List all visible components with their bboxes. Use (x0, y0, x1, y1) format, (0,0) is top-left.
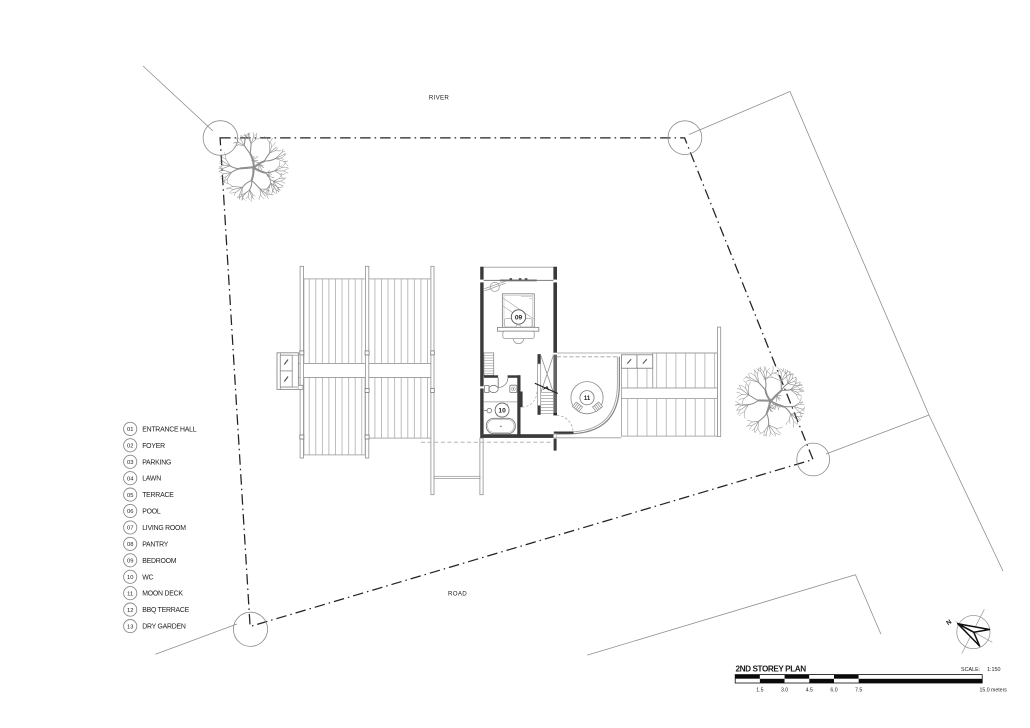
svg-text:1:150: 1:150 (987, 667, 1001, 673)
svg-text:05: 05 (127, 493, 133, 499)
svg-text:ENTRANCE HALL: ENTRANCE HALL (142, 426, 197, 433)
svg-text:01: 01 (127, 427, 133, 433)
svg-text:BBQ TERRACE: BBQ TERRACE (142, 607, 189, 614)
svg-text:1.5: 1.5 (756, 688, 763, 694)
svg-text:15.0 meters: 15.0 meters (980, 688, 1008, 694)
svg-text:12: 12 (127, 608, 133, 614)
svg-text:09: 09 (127, 559, 133, 565)
svg-text:PARKING: PARKING (142, 459, 171, 466)
svg-text:10: 10 (127, 575, 133, 581)
svg-text:04: 04 (127, 476, 134, 482)
svg-text:07: 07 (127, 526, 133, 532)
svg-text:WC: WC (142, 574, 153, 581)
svg-text:FOYER: FOYER (142, 443, 165, 450)
svg-text:02: 02 (127, 444, 133, 450)
svg-text:13: 13 (127, 624, 133, 630)
svg-text:11: 11 (127, 591, 133, 597)
svg-text:06: 06 (127, 509, 133, 515)
svg-text:PANTRY: PANTRY (142, 541, 169, 548)
svg-text:6.0: 6.0 (830, 688, 837, 694)
svg-text:RIVER: RIVER (429, 94, 449, 101)
svg-text:3.0: 3.0 (781, 688, 788, 694)
svg-text:10: 10 (498, 408, 506, 415)
svg-text:BEDROOM: BEDROOM (142, 558, 177, 565)
svg-text:LAWN: LAWN (142, 476, 161, 483)
svg-text:SCALE:: SCALE: (961, 667, 980, 673)
svg-text:03: 03 (127, 460, 133, 466)
svg-text:09: 09 (515, 315, 523, 322)
svg-text:11: 11 (584, 396, 591, 402)
svg-text:7.5: 7.5 (855, 688, 862, 694)
svg-text:POOL: POOL (142, 509, 161, 516)
svg-text:MOON DECK: MOON DECK (142, 591, 183, 598)
svg-text:4.5: 4.5 (806, 688, 813, 694)
svg-text:08: 08 (127, 542, 133, 548)
svg-text:LIVING ROOM: LIVING ROOM (142, 525, 186, 532)
svg-text:2ND STOREY PLAN: 2ND STOREY PLAN (736, 665, 807, 674)
svg-text:DRY GARDEN: DRY GARDEN (142, 624, 186, 631)
svg-text:TERRACE: TERRACE (142, 492, 174, 499)
svg-text:ROAD: ROAD (448, 590, 467, 597)
